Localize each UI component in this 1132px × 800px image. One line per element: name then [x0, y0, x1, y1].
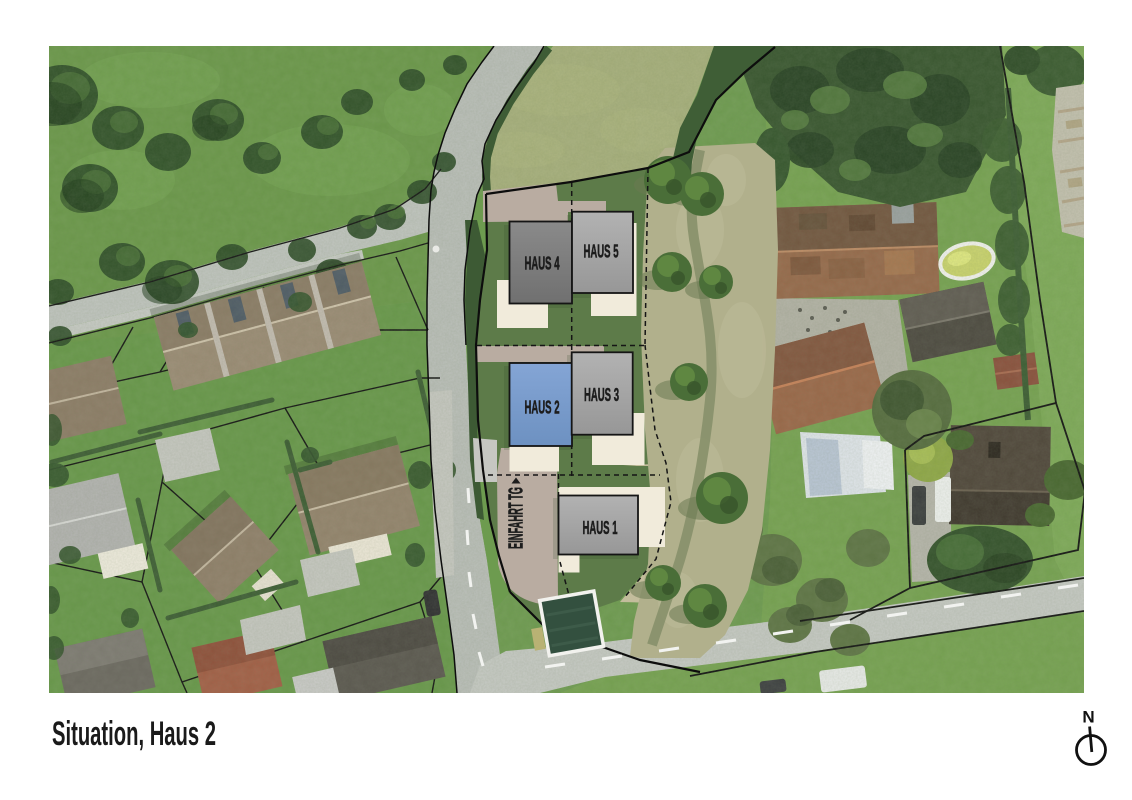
svg-text:HAUS 2: HAUS 2 [525, 396, 560, 417]
svg-text:EINFAHRT TG: EINFAHRT TG [506, 487, 528, 549]
svg-text:HAUS 4: HAUS 4 [525, 253, 560, 274]
svg-text:HAUS 1: HAUS 1 [583, 517, 618, 538]
svg-text:HAUS 3: HAUS 3 [584, 384, 619, 405]
svg-text:N: N [1082, 708, 1094, 727]
svg-text:HAUS 5: HAUS 5 [584, 240, 619, 261]
svg-text:Situation, Haus 2: Situation, Haus 2 [52, 715, 216, 753]
